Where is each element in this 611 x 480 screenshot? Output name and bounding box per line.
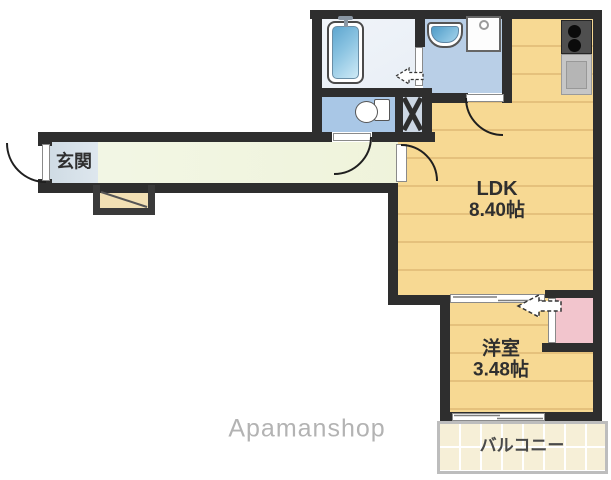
wall bbox=[312, 10, 322, 142]
western-room-size: 3.48帖 bbox=[473, 360, 529, 381]
washing-machine-drain bbox=[479, 20, 489, 30]
entrance-door-swing-arc bbox=[7, 143, 46, 182]
balcony-window bbox=[452, 413, 545, 421]
ldk-door-leaf bbox=[396, 144, 407, 182]
entrance-label: 玄関 bbox=[56, 152, 92, 171]
stove-burner bbox=[568, 39, 581, 52]
entrance-door-leaf bbox=[42, 144, 50, 181]
closet bbox=[556, 298, 593, 343]
ldk-name: LDK bbox=[469, 179, 525, 201]
wall bbox=[502, 10, 512, 103]
pipe-shaft-box bbox=[403, 97, 422, 132]
balcony-label: バルコニー bbox=[480, 437, 565, 455]
wall bbox=[395, 88, 403, 142]
stove-burner bbox=[568, 25, 581, 38]
hallway-floor bbox=[49, 142, 398, 183]
bathtub-water bbox=[332, 26, 359, 79]
watermark-text: Apamanshop bbox=[228, 415, 385, 444]
bath-folding-door-leaf bbox=[415, 47, 423, 86]
wall bbox=[545, 290, 593, 298]
sliding-door bbox=[450, 294, 545, 303]
washroom-door-leaf bbox=[466, 94, 504, 102]
wall bbox=[593, 10, 602, 421]
wall bbox=[40, 132, 332, 142]
toilet-bowl-icon bbox=[355, 101, 378, 123]
wall bbox=[415, 10, 425, 47]
faucet-icon bbox=[344, 19, 348, 27]
floor-plan: 玄関 LDK 8.40帖 洋室 3.48帖 バルコニー Apamanshop bbox=[0, 0, 611, 480]
wall bbox=[542, 343, 593, 352]
wall bbox=[440, 298, 450, 421]
wall bbox=[422, 88, 432, 142]
toilet-door-leaf bbox=[333, 133, 371, 141]
wall bbox=[38, 179, 52, 193]
wall bbox=[388, 183, 398, 305]
closet-door-leaf bbox=[548, 298, 556, 343]
kitchen-sink bbox=[566, 61, 587, 89]
wall bbox=[312, 88, 432, 97]
western-room-name: 洋室 bbox=[473, 339, 529, 360]
western-room-label: 洋室 3.48帖 bbox=[473, 339, 529, 380]
ldk-label: LDK 8.40帖 bbox=[469, 179, 525, 221]
wall bbox=[93, 208, 155, 215]
ldk-size: 8.40帖 bbox=[469, 201, 525, 222]
entry-step bbox=[100, 191, 148, 208]
wall bbox=[310, 10, 602, 19]
